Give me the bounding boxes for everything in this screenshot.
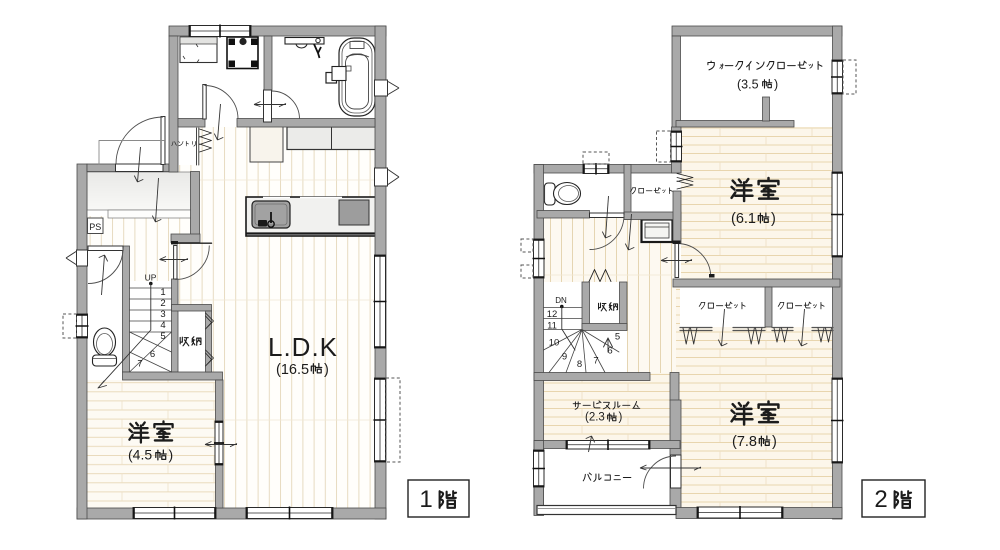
- svg-text:11: 11: [547, 321, 557, 332]
- svg-text:PS: PS: [89, 222, 101, 232]
- svg-text:(2.3: (2.3: [585, 412, 605, 424]
- svg-text:(4.5: (4.5: [128, 447, 152, 463]
- svg-text:10: 10: [549, 338, 560, 349]
- svg-text:(6.1: (6.1: [731, 211, 756, 227]
- svg-text:2: 2: [160, 298, 165, 309]
- svg-text:1: 1: [419, 486, 432, 513]
- svg-text:): ): [771, 211, 776, 227]
- svg-text:12: 12: [547, 309, 558, 320]
- svg-text:): ): [774, 78, 778, 92]
- svg-text:6: 6: [607, 346, 612, 357]
- svg-text:): ): [772, 434, 777, 450]
- svg-text:7: 7: [593, 356, 598, 367]
- svg-text:(16.5: (16.5: [276, 362, 309, 378]
- svg-text:(7.8: (7.8: [732, 434, 757, 450]
- svg-text:): ): [324, 362, 329, 378]
- svg-text:3: 3: [160, 309, 165, 320]
- svg-text:9: 9: [562, 352, 567, 363]
- svg-text:4: 4: [160, 320, 165, 331]
- svg-text:7: 7: [137, 359, 142, 370]
- svg-text:6: 6: [150, 349, 155, 360]
- svg-text:L.D.K: L.D.K: [268, 332, 338, 362]
- svg-text:2: 2: [874, 486, 887, 513]
- svg-text:): ): [169, 447, 174, 463]
- svg-text:8: 8: [577, 359, 582, 370]
- svg-text:5: 5: [160, 331, 165, 342]
- svg-text:5: 5: [615, 332, 620, 343]
- svg-text:(3.5: (3.5: [737, 78, 759, 92]
- svg-text:DN: DN: [555, 296, 567, 305]
- svg-text:): ): [619, 412, 623, 424]
- svg-text:1: 1: [160, 287, 165, 298]
- svg-text:UP: UP: [145, 273, 157, 283]
